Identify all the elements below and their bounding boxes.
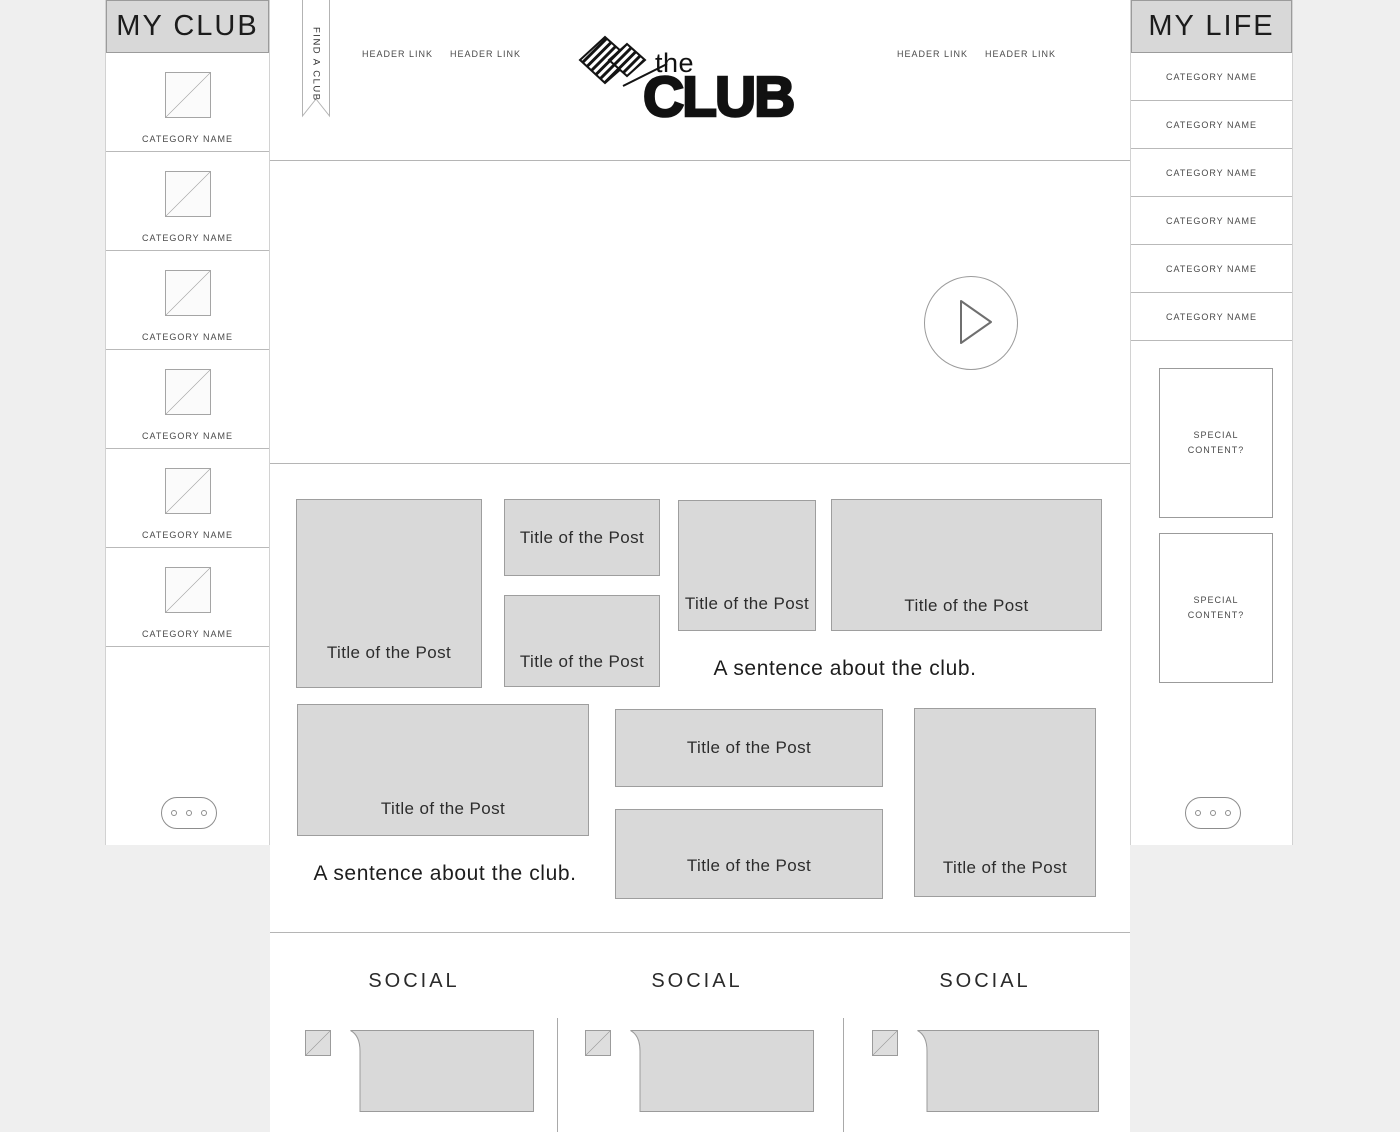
left-sidebar-title: MY CLUB	[106, 0, 269, 53]
category-label: CATEGORY NAME	[142, 530, 233, 540]
category-label: CATEGORY NAME	[142, 134, 233, 144]
sidebar-item-category[interactable]: CATEGORY NAME	[1131, 197, 1292, 245]
social-post-bubble[interactable]	[629, 1029, 815, 1113]
image-placeholder-icon	[165, 369, 211, 415]
social-heading-3: SOCIAL	[885, 970, 1085, 993]
post-title: Title of the Post	[687, 856, 811, 876]
post-card[interactable]: Title of the Post	[615, 809, 883, 899]
post-card[interactable]: Title of the Post	[297, 704, 589, 836]
sidebar-item-category[interactable]: CATEGORY NAME	[1131, 245, 1292, 293]
right-sidebar-title: MY LIFE	[1131, 0, 1292, 53]
post-card[interactable]: Title of the Post	[831, 499, 1102, 631]
social-avatar-placeholder	[585, 1030, 611, 1056]
sidebar-item-category[interactable]: CATEGORY NAME	[106, 251, 269, 350]
header-divider	[270, 160, 1130, 161]
post-title: Title of the Post	[327, 643, 451, 663]
post-title: Title of the Post	[520, 528, 644, 548]
image-placeholder-icon	[165, 171, 211, 217]
category-label: CATEGORY NAME	[142, 233, 233, 243]
more-button[interactable]	[1185, 797, 1241, 829]
left-sidebar: MY CLUB CATEGORY NAME CATEGORY NAME CATE…	[105, 0, 270, 845]
social-heading-1: SOCIAL	[314, 970, 514, 993]
speech-bubble-icon	[916, 1029, 1100, 1113]
more-button[interactable]	[161, 797, 217, 829]
social-divider	[557, 1018, 558, 1132]
post-card[interactable]: Title of the Post	[504, 499, 660, 576]
find-a-club-ribbon[interactable]: FIND A CLUB	[302, 0, 330, 120]
social-post-bubble[interactable]	[916, 1029, 1100, 1113]
page-canvas: HEADER LINK HEADER LINK HEADER LINK HEAD…	[0, 0, 1400, 1132]
sidebar-item-category[interactable]: CATEGORY NAME	[1131, 101, 1292, 149]
video-play-button[interactable]	[924, 276, 1018, 370]
social-heading-2: SOCIAL	[597, 970, 797, 993]
category-label: CATEGORY NAME	[142, 431, 233, 441]
right-sidebar: MY LIFE CATEGORY NAME CATEGORY NAME CATE…	[1130, 0, 1293, 845]
club-sentence-left: A sentence about the club.	[300, 862, 590, 886]
post-title: Title of the Post	[943, 858, 1067, 878]
sidebar-item-category[interactable]: CATEGORY NAME	[1131, 53, 1292, 101]
social-avatar-placeholder	[305, 1030, 331, 1056]
post-title: Title of the Post	[381, 799, 505, 819]
ellipsis-dot-icon	[1195, 810, 1201, 816]
post-card[interactable]: Title of the Post	[504, 595, 660, 687]
image-placeholder-icon	[165, 567, 211, 613]
post-title: Title of the Post	[687, 738, 811, 758]
category-label: CATEGORY NAME	[142, 332, 233, 342]
special-content-box[interactable]: SPECIAL CONTENT?	[1159, 533, 1273, 683]
post-card[interactable]: Title of the Post	[296, 499, 482, 688]
post-title: Title of the Post	[520, 652, 644, 672]
special-content-box[interactable]: SPECIAL CONTENT?	[1159, 368, 1273, 518]
header-link-2[interactable]: HEADER LINK	[450, 49, 521, 59]
play-icon	[925, 277, 1015, 367]
club-logo[interactable]: the CLUB	[575, 34, 840, 126]
speech-bubble-icon	[629, 1029, 815, 1113]
ellipsis-dot-icon	[1210, 810, 1216, 816]
logo-club-text: CLUB	[643, 64, 793, 130]
ribbon-label: FIND A CLUB	[302, 24, 330, 104]
image-placeholder-icon	[165, 468, 211, 514]
speech-bubble-icon	[349, 1029, 535, 1113]
post-card[interactable]: Title of the Post	[914, 708, 1096, 897]
ellipsis-dot-icon	[171, 810, 177, 816]
social-avatar-placeholder	[872, 1030, 898, 1056]
sidebar-item-category[interactable]: CATEGORY NAME	[106, 53, 269, 152]
sidebar-item-category[interactable]: CATEGORY NAME	[106, 152, 269, 251]
ellipsis-dot-icon	[1225, 810, 1231, 816]
video-divider	[270, 463, 1130, 464]
ellipsis-dot-icon	[186, 810, 192, 816]
sidebar-item-category[interactable]: CATEGORY NAME	[106, 548, 269, 647]
image-placeholder-icon	[165, 270, 211, 316]
social-divider	[843, 1018, 844, 1132]
header-link-4[interactable]: HEADER LINK	[985, 49, 1056, 59]
social-post-bubble[interactable]	[349, 1029, 535, 1113]
sidebar-item-category[interactable]: CATEGORY NAME	[1131, 149, 1292, 197]
post-card[interactable]: Title of the Post	[615, 709, 883, 787]
post-title: Title of the Post	[904, 596, 1028, 616]
posts-divider	[270, 932, 1130, 933]
header-link-3[interactable]: HEADER LINK	[897, 49, 968, 59]
sidebar-item-category[interactable]: CATEGORY NAME	[1131, 293, 1292, 341]
post-title: Title of the Post	[685, 594, 809, 614]
club-sentence-right: A sentence about the club.	[700, 657, 990, 681]
category-label: CATEGORY NAME	[142, 629, 233, 639]
sidebar-item-category[interactable]: CATEGORY NAME	[106, 449, 269, 548]
ellipsis-dot-icon	[201, 810, 207, 816]
main-content: HEADER LINK HEADER LINK HEADER LINK HEAD…	[270, 0, 1130, 1132]
image-placeholder-icon	[165, 72, 211, 118]
sidebar-item-category[interactable]: CATEGORY NAME	[106, 350, 269, 449]
header-link-1[interactable]: HEADER LINK	[362, 49, 433, 59]
post-card[interactable]: Title of the Post	[678, 500, 816, 631]
